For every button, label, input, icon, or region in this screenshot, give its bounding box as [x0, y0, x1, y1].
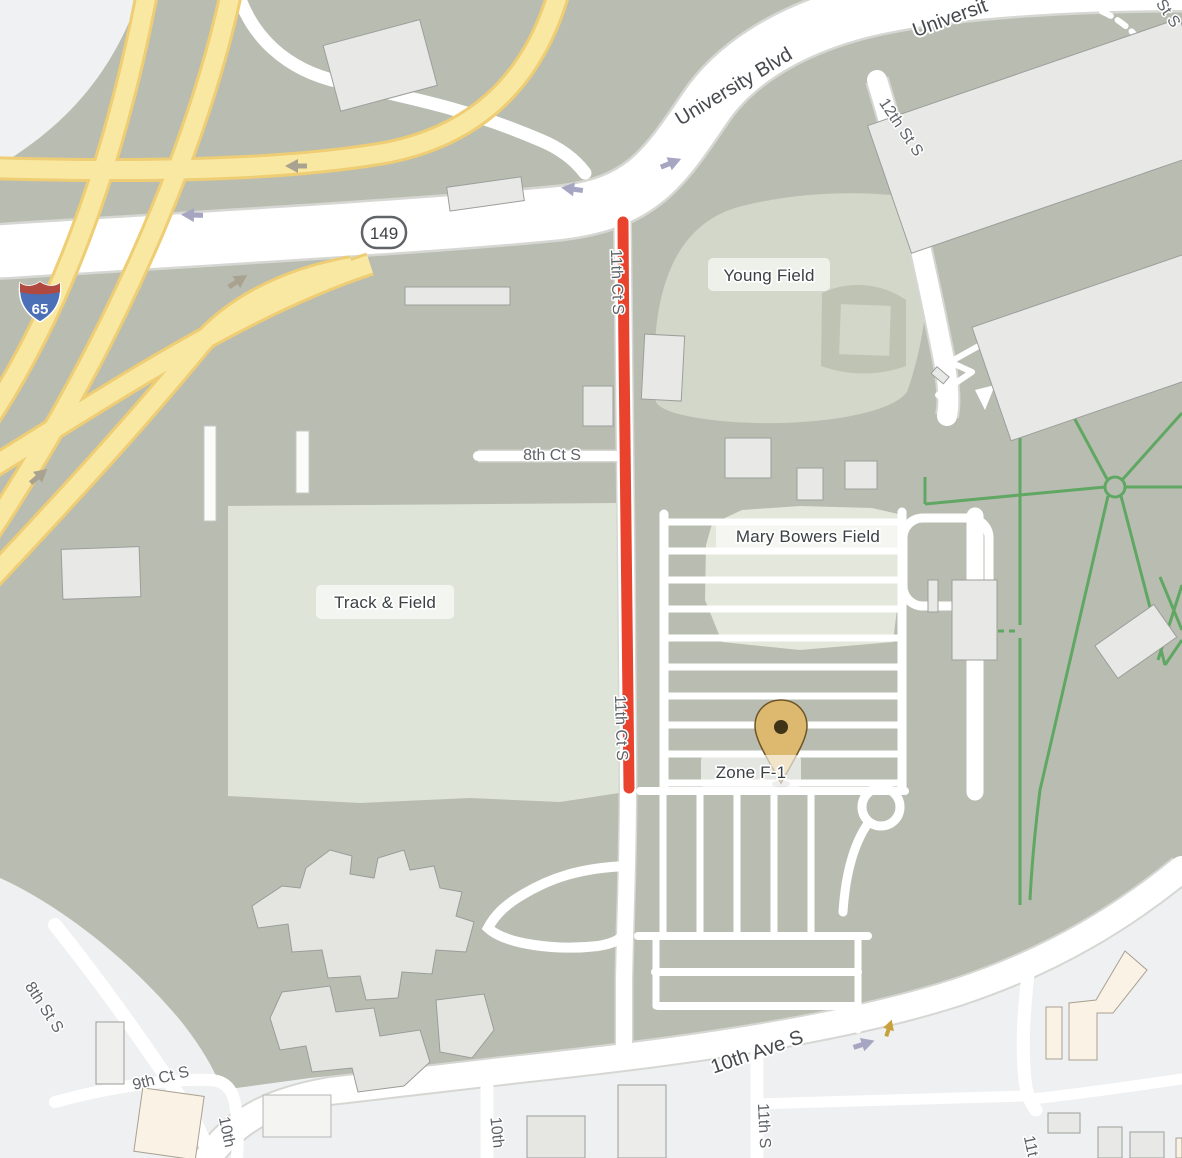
- young-field-label: Young Field: [723, 266, 814, 285]
- zone-f1-label: Zone F-1: [716, 763, 787, 782]
- track-and-field-label: Track & Field: [334, 593, 436, 612]
- eleventh-ct-label-upper: 11th Ct S: [607, 249, 626, 315]
- track-and-field-area: [228, 503, 619, 803]
- eleventh-ct-label-lower: 11th Ct S: [611, 695, 630, 761]
- map-canvas[interactable]: 149 65 Young Field Track & Field Mary Bo…: [0, 0, 1182, 1158]
- interstate-65-label: 65: [32, 301, 49, 318]
- route-149-badge: 149: [362, 217, 406, 248]
- eleventh-label-mid: 11th S: [754, 1103, 773, 1149]
- eighth-ct-label: 8th Ct S: [523, 447, 581, 464]
- tenth-label-mid: 10th: [486, 1116, 506, 1149]
- route-149-label: 149: [370, 224, 398, 243]
- mary-bowers-field-label: Mary Bowers Field: [736, 527, 880, 546]
